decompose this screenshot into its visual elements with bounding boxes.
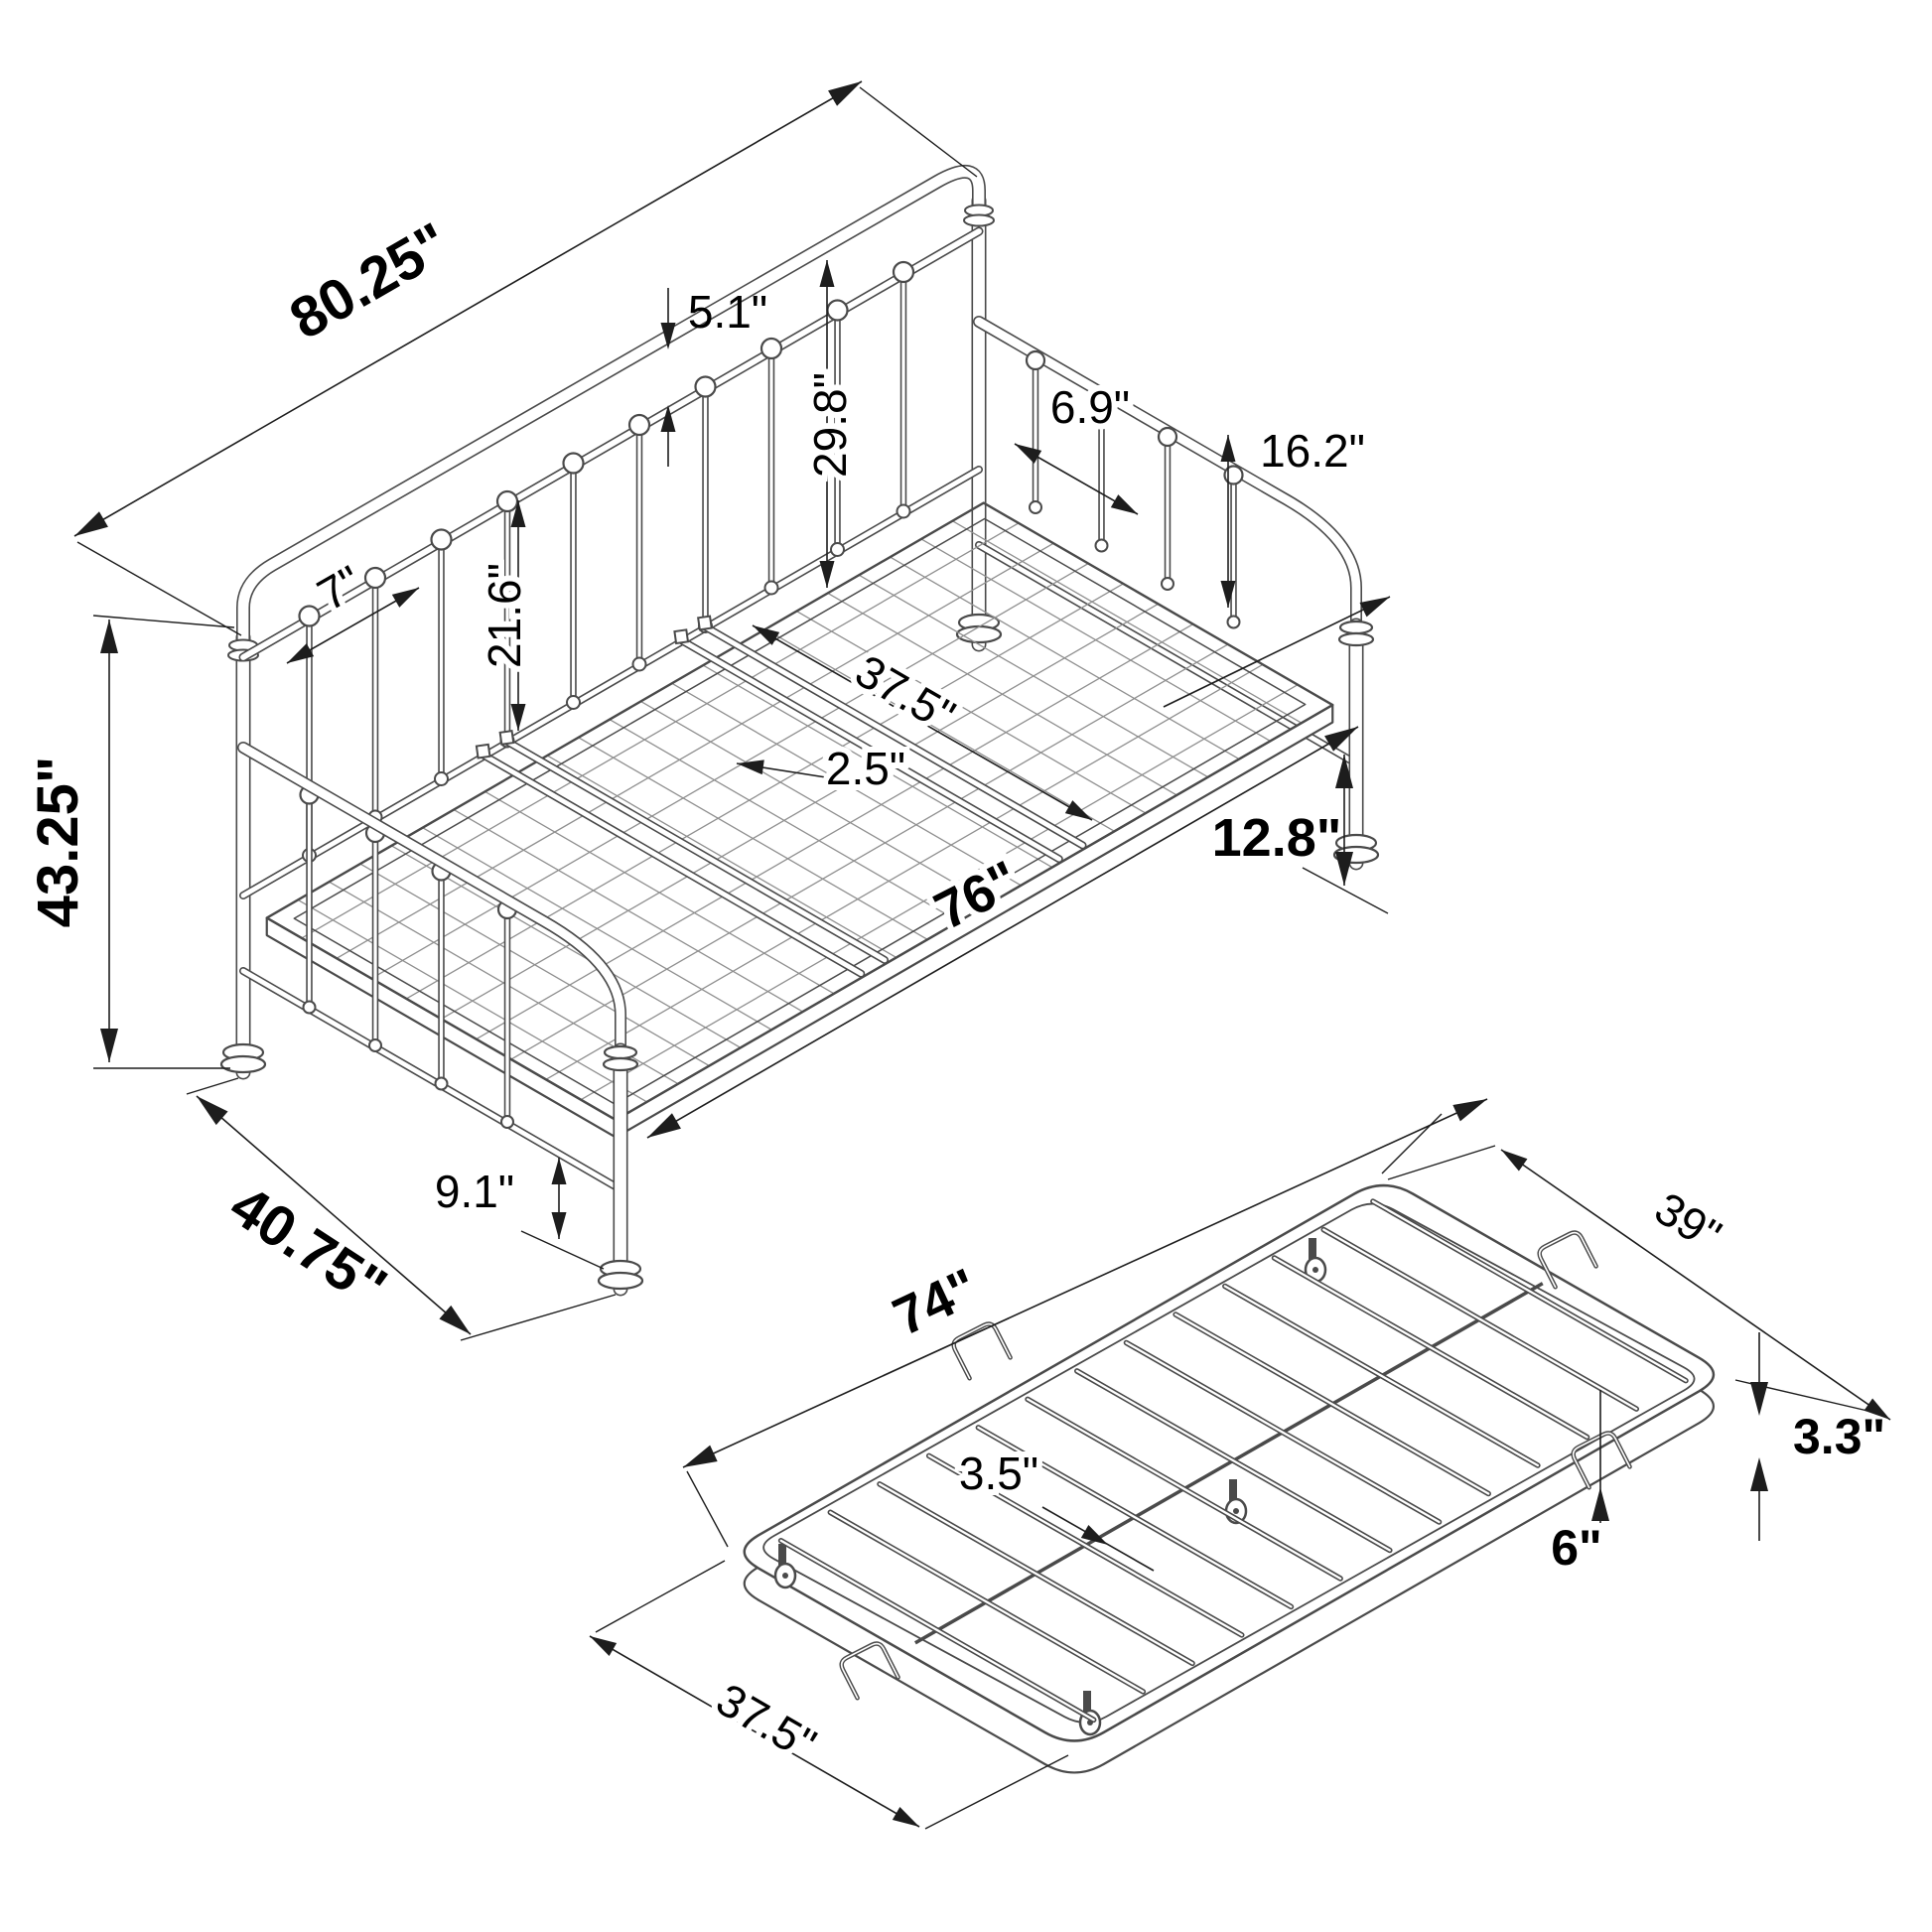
dim-label-arm-spindle-spacing: 6.9" xyxy=(1050,381,1130,433)
dim-label-underbed-clearance: 12.8" xyxy=(1212,808,1342,868)
daybed-trundle-diagram: 80.25"43.25"40.75"9.1"5.1"29.8"21.6"7"6.… xyxy=(0,0,1932,1932)
dim-label-spindle-length: 21.6" xyxy=(479,563,530,668)
dim-label-arm-height: 16.2" xyxy=(1260,425,1365,477)
dim-label-trundle-handle-length: 6" xyxy=(1551,1520,1602,1576)
dim-label-lower-rail-height: 9.1" xyxy=(435,1166,514,1217)
dim-label-overall-height: 43.25" xyxy=(26,757,90,928)
dim-label-back-rail-gap: 5.1" xyxy=(688,286,767,338)
dim-label-trundle-frame-height: 3.3" xyxy=(1793,1409,1885,1464)
dim-label-back-height: 29.8" xyxy=(804,372,856,478)
dim-label-support-bar-gap: 2.5" xyxy=(826,743,905,794)
dim-label-trundle-slat-spacing: 3.5" xyxy=(959,1448,1038,1499)
dimension-diagram: 80.25"43.25"40.75"9.1"5.1"29.8"21.6"7"6.… xyxy=(0,0,1932,1932)
